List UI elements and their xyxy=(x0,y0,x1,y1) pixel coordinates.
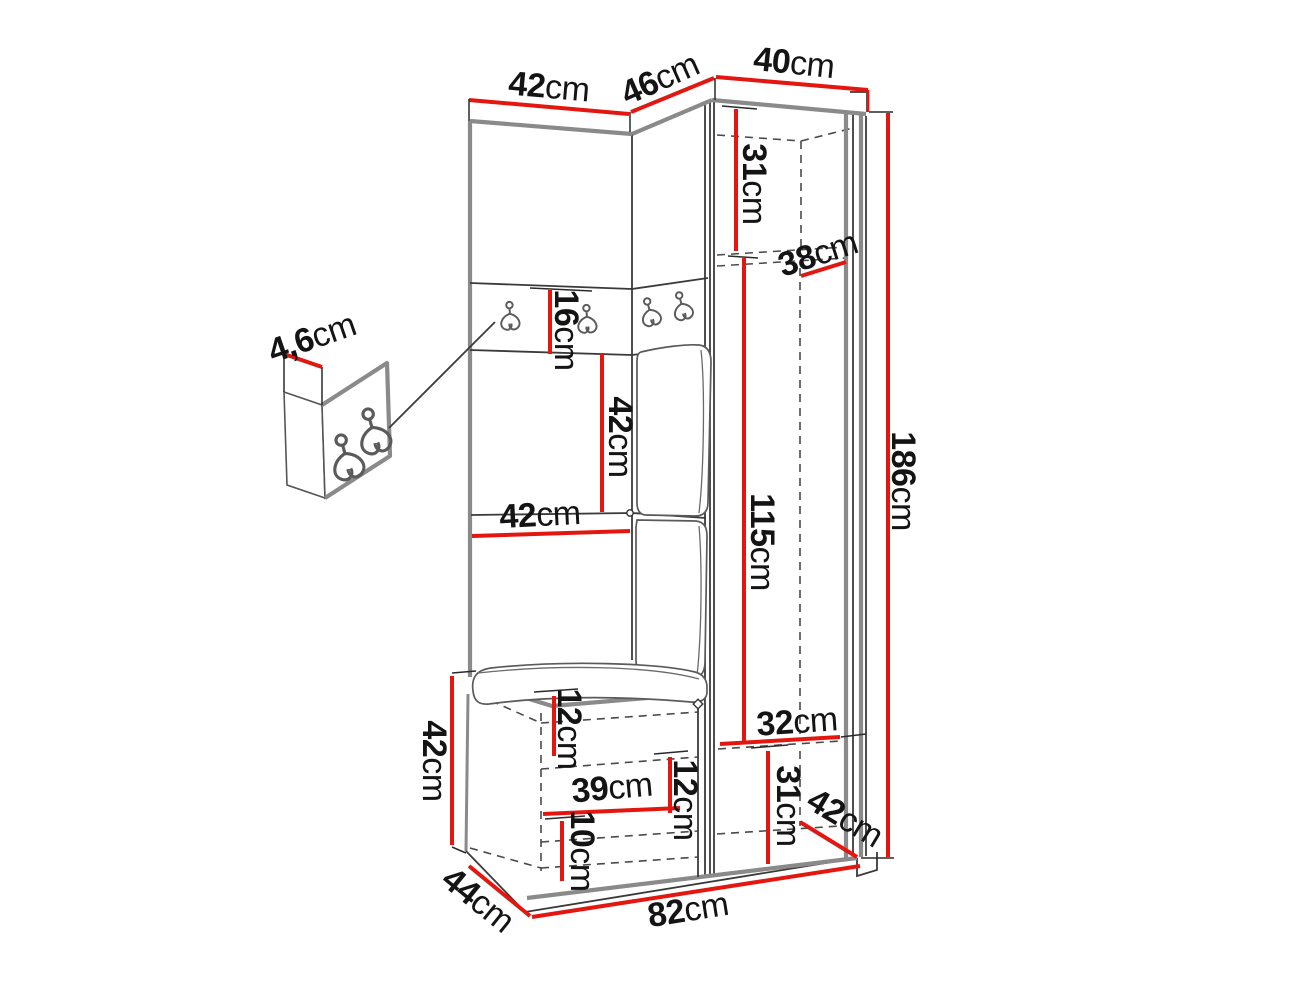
dim-bench-shelf-spacing: 12cm xyxy=(666,759,704,840)
dim-cabinet-inner-depth: 38cm xyxy=(774,223,863,284)
dim-total-width: 82cm xyxy=(645,885,731,935)
dim-cabinet-inner-height: 115cm xyxy=(743,493,781,591)
dim-bench-inner-width: 39cm xyxy=(570,766,654,811)
dim-top-corner-width: 46cm xyxy=(615,45,705,113)
dim-panel-mid-width: 42cm xyxy=(498,494,581,536)
dim-cabinet-lower-inner-width: 32cm xyxy=(755,700,839,744)
dim-cabinet-upper-inner-height: 31cm xyxy=(735,143,773,224)
dim-total-height: 186cm xyxy=(884,431,922,531)
dim-cabinet-lower-inner-height: 31cm xyxy=(769,765,807,846)
dim-hook-panel-thickness: 4,6cm xyxy=(263,305,361,370)
coat-hook-icon xyxy=(637,296,662,328)
coat-hook-icon xyxy=(500,301,520,330)
dimension-labels: 42cm 46cm 40cm 31cm 38cm 4,6cm 16cm 42cm… xyxy=(263,40,922,940)
dim-bench-top-clearance: 12cm xyxy=(550,688,588,769)
coat-hook-icon xyxy=(669,290,694,322)
seam-joint-marker xyxy=(627,510,633,516)
dim-plinth-height: 10cm xyxy=(563,810,601,891)
dim-bench-height: 42cm xyxy=(415,720,453,801)
diagram-canvas: 42cm 46cm 40cm 31cm 38cm 4,6cm 16cm 42cm… xyxy=(0,0,1315,986)
product-dimension-diagram: 42cm 46cm 40cm 31cm 38cm 4,6cm 16cm 42cm… xyxy=(0,0,1315,986)
dim-panel-mid-height: 42cm xyxy=(601,396,639,477)
dim-top-left-width: 42cm xyxy=(507,65,591,110)
coat-hooks xyxy=(500,290,694,333)
dim-hook-strip-height: 16cm xyxy=(547,289,585,370)
detail-callout-line xyxy=(389,322,495,428)
upholstered-pads xyxy=(636,345,711,679)
bench-cushion xyxy=(473,663,707,704)
